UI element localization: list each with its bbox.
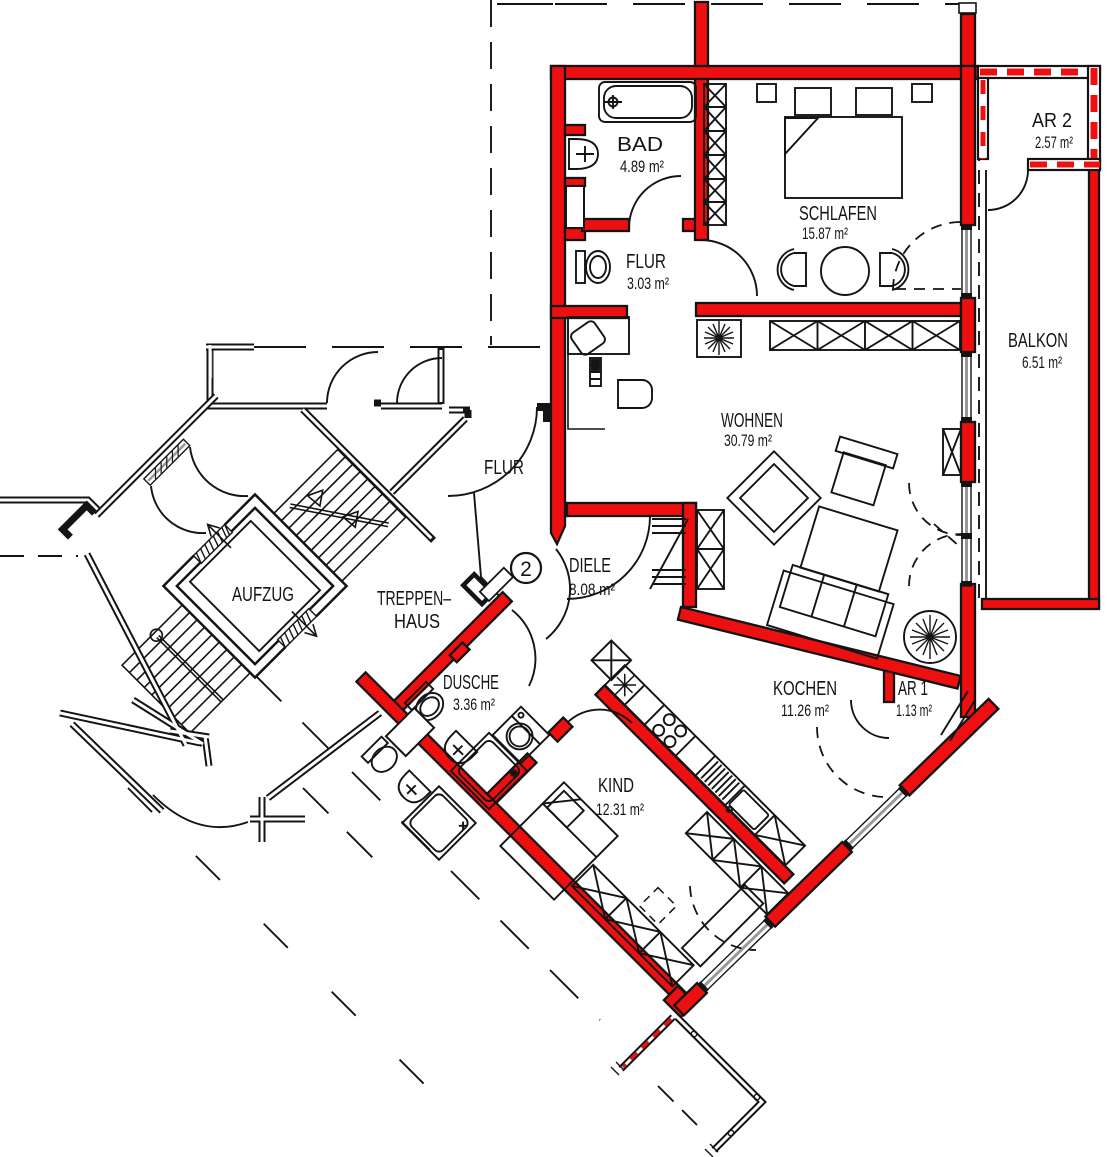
svg-text:3.36 m²: 3.36 m²	[453, 696, 495, 714]
svg-text:FLUR: FLUR	[484, 457, 524, 479]
svg-text:DUSCHE: DUSCHE	[443, 672, 499, 694]
svg-text:BAD: BAD	[617, 134, 663, 156]
svg-text:2: 2	[520, 558, 532, 581]
svg-text:15.87 m²: 15.87 m²	[802, 225, 848, 243]
svg-text:2.57 m²: 2.57 m²	[1035, 134, 1073, 152]
svg-text:WOHNEN: WOHNEN	[721, 410, 783, 432]
svg-text:AR 1: AR 1	[898, 678, 928, 700]
svg-text:TREPPEN–: TREPPEN–	[377, 588, 452, 610]
svg-text:HAUS: HAUS	[394, 611, 440, 633]
svg-text:11.26 m²: 11.26 m²	[781, 702, 829, 720]
svg-text:8.08 m²: 8.08 m²	[569, 581, 615, 599]
svg-text:SCHLAFEN: SCHLAFEN	[799, 203, 877, 225]
svg-text:DIELE: DIELE	[569, 555, 611, 577]
svg-text:FLUR: FLUR	[626, 251, 666, 273]
svg-text:30.79 m²: 30.79 m²	[724, 432, 772, 450]
svg-text:AUFZUG: AUFZUG	[232, 584, 294, 606]
svg-text:BALKON: BALKON	[1008, 330, 1068, 352]
svg-text:6.51 m²: 6.51 m²	[1022, 354, 1062, 372]
svg-text:AR 2: AR 2	[1032, 110, 1072, 132]
svg-text:4.89 m²: 4.89 m²	[620, 158, 664, 176]
svg-text:12.31 m²: 12.31 m²	[596, 801, 644, 819]
svg-text:KOCHEN: KOCHEN	[773, 678, 837, 700]
svg-text:3.03 m²: 3.03 m²	[627, 275, 669, 293]
svg-text:1.13 m²: 1.13 m²	[896, 702, 932, 720]
svg-text:KIND: KIND	[598, 775, 634, 797]
